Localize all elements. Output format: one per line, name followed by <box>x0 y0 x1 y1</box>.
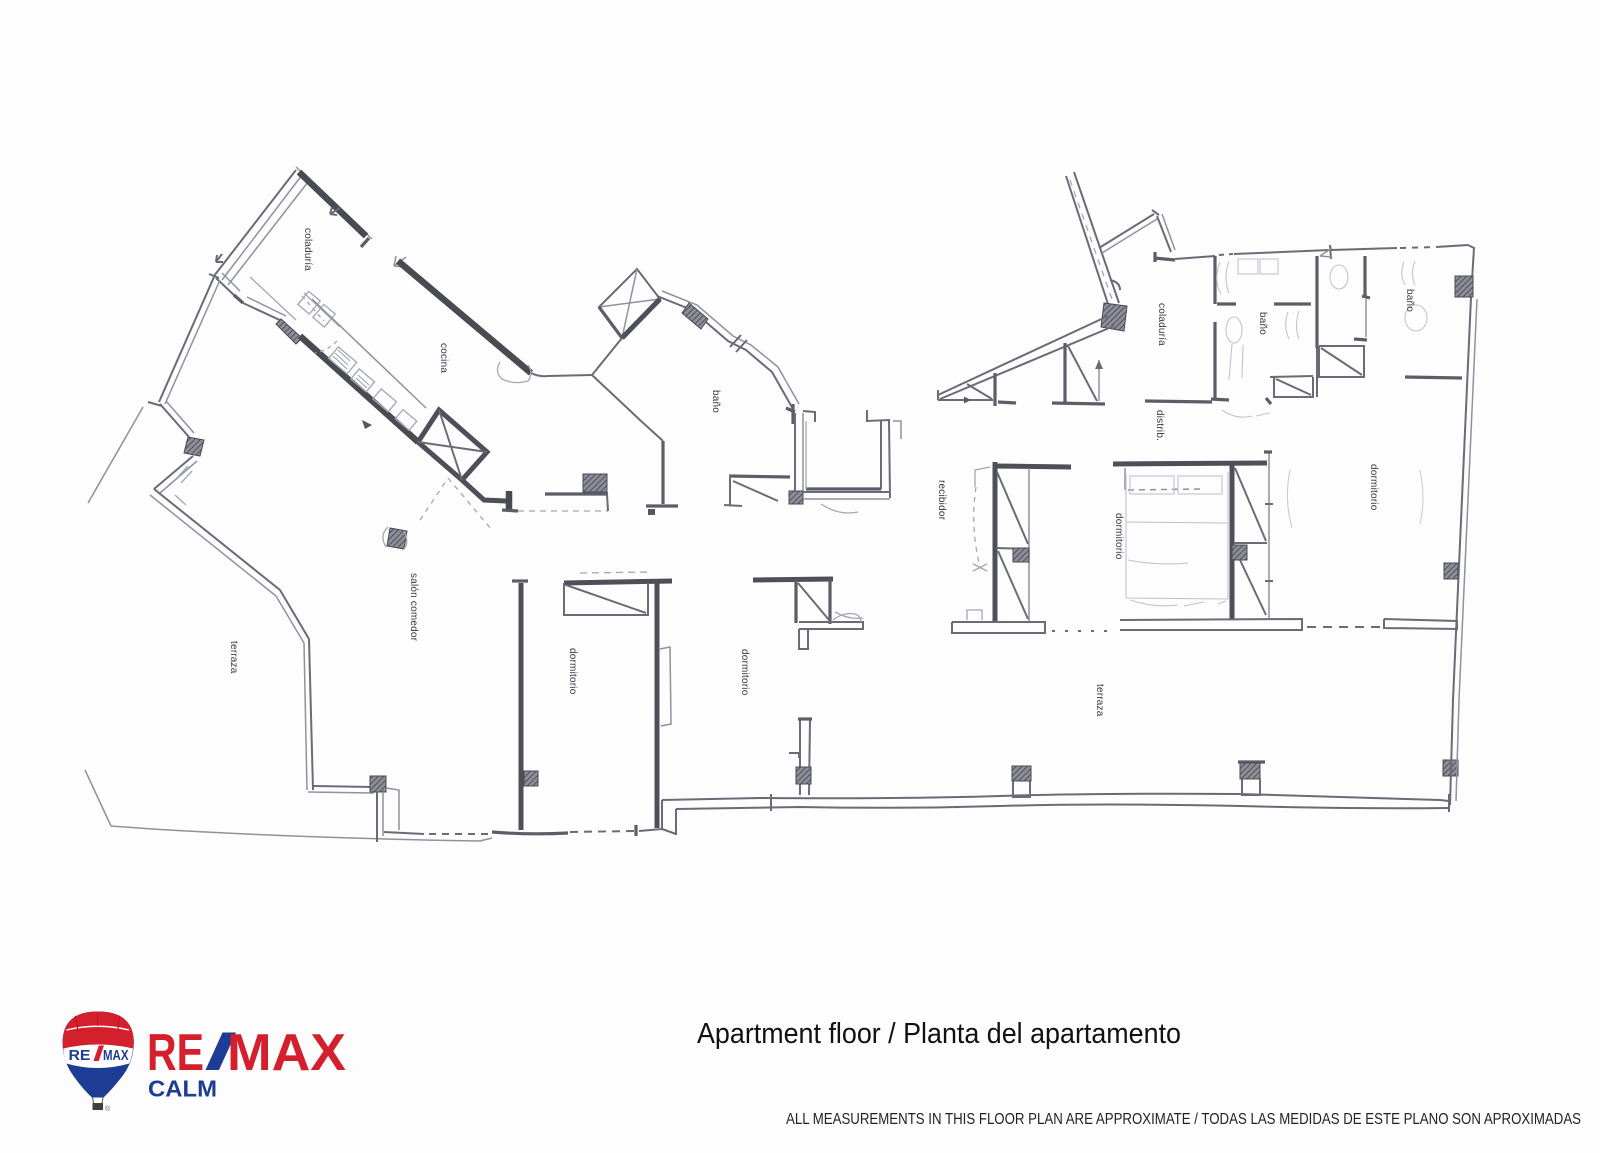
svg-text:baño: baño <box>1257 312 1268 335</box>
svg-text:dormitorio: dormitorio <box>1368 464 1379 511</box>
svg-text:terraza: terraza <box>1094 684 1105 717</box>
svg-text:CALM: CALM <box>148 1076 217 1102</box>
svg-text:cocina: cocina <box>438 343 449 373</box>
svg-text:Apartment floor / Planta del a: Apartment floor / Planta del apartamento <box>697 1018 1181 1050</box>
svg-text:ALL MEASUREMENTS IN THIS FLOOR: ALL MEASUREMENTS IN THIS FLOOR PLAN ARE … <box>786 1111 1581 1128</box>
svg-text:coladuría: coladuría <box>302 228 313 271</box>
svg-text:MAX: MAX <box>227 1024 346 1082</box>
svg-text:coladuría: coladuría <box>1156 303 1167 346</box>
svg-text:dormitorio: dormitorio <box>739 649 750 696</box>
svg-text:recibidor: recibidor <box>936 480 947 521</box>
svg-text:MAX: MAX <box>103 1047 129 1064</box>
svg-text:RE: RE <box>69 1047 91 1064</box>
svg-text:baño: baño <box>710 390 721 413</box>
svg-text:dormitorio: dormitorio <box>567 648 578 695</box>
svg-text:salón comedor: salón comedor <box>408 573 419 642</box>
svg-text:RE: RE <box>147 1024 204 1082</box>
svg-text:dormitorio: dormitorio <box>1113 513 1124 560</box>
svg-text:®: ® <box>105 1105 111 1113</box>
svg-text:distrib.: distrib. <box>1154 410 1165 441</box>
svg-text:terraza: terraza <box>228 641 239 674</box>
svg-text:baño: baño <box>1404 289 1415 312</box>
